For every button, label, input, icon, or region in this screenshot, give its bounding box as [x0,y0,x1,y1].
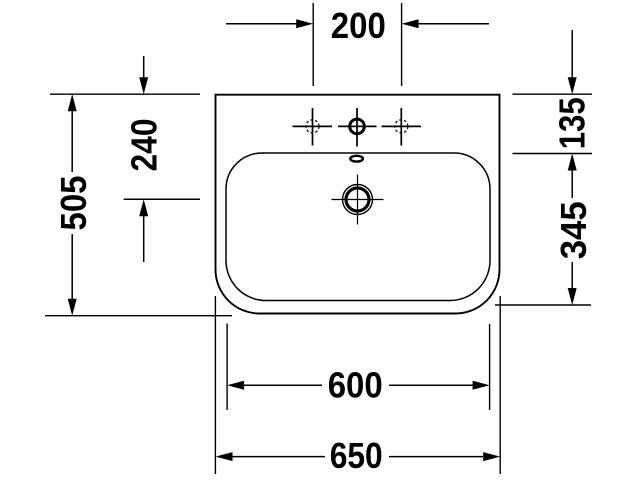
svg-text:200: 200 [331,5,386,46]
svg-text:650: 650 [330,435,383,476]
svg-text:240: 240 [123,119,164,172]
svg-text:345: 345 [553,201,594,259]
svg-text:600: 600 [328,365,383,406]
svg-text:505: 505 [53,176,94,231]
svg-text:135: 135 [552,97,593,149]
